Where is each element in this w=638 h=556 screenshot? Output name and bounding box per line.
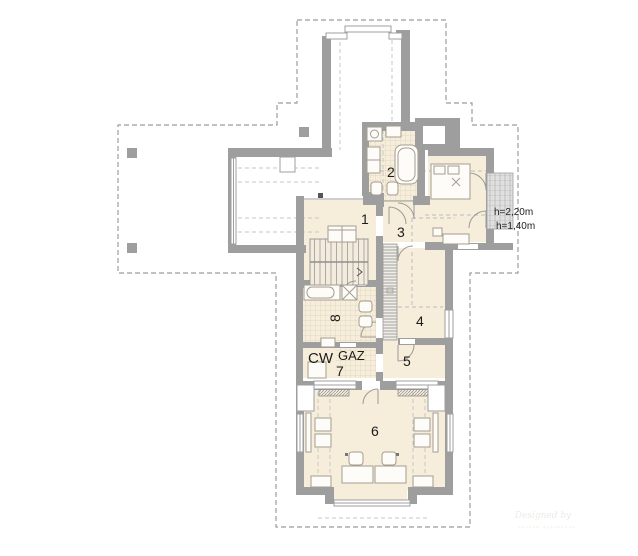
floor-plan-svg: 1 2 3 4 5 6 7 8 CW GAZ h=2,20m h=1,40m D… <box>0 0 638 556</box>
watermark-line1: Designed by <box>514 511 572 521</box>
room-6-label: 6 <box>371 423 379 439</box>
room-5-label: 5 <box>403 353 411 369</box>
sofa <box>328 226 356 242</box>
room-7-label: 7 <box>336 363 344 379</box>
floor-plan-page: 1 2 3 4 5 6 7 8 CW GAZ h=2,20m h=1,40m D… <box>0 0 638 556</box>
room-4-label: 4 <box>416 313 424 329</box>
room-1-label: 1 <box>361 211 369 227</box>
corner-cabinet-right <box>428 385 445 411</box>
gaz-label: GAZ <box>338 348 365 363</box>
roof-columns <box>127 127 309 253</box>
watermark-line2: ▪▪▪▪▪▪ ▪▪▪▪▪▪▪▪▪ <box>518 525 576 531</box>
room-8-label: 8 <box>327 314 343 322</box>
height-lower-label: h=1,40m <box>496 221 535 232</box>
cw-label: CW <box>308 350 334 367</box>
attic-ladder <box>383 244 397 340</box>
corner-cabinet-left <box>297 385 314 411</box>
room-2-label: 2 <box>387 164 395 180</box>
stairs <box>310 239 368 285</box>
wall-marker <box>318 193 323 198</box>
room-3-label: 3 <box>397 224 405 240</box>
height-upper-label: h=2,20m <box>494 207 533 218</box>
dresser <box>443 234 469 244</box>
bed <box>431 164 470 199</box>
nightstand <box>433 228 442 236</box>
chimney-box <box>280 157 295 172</box>
